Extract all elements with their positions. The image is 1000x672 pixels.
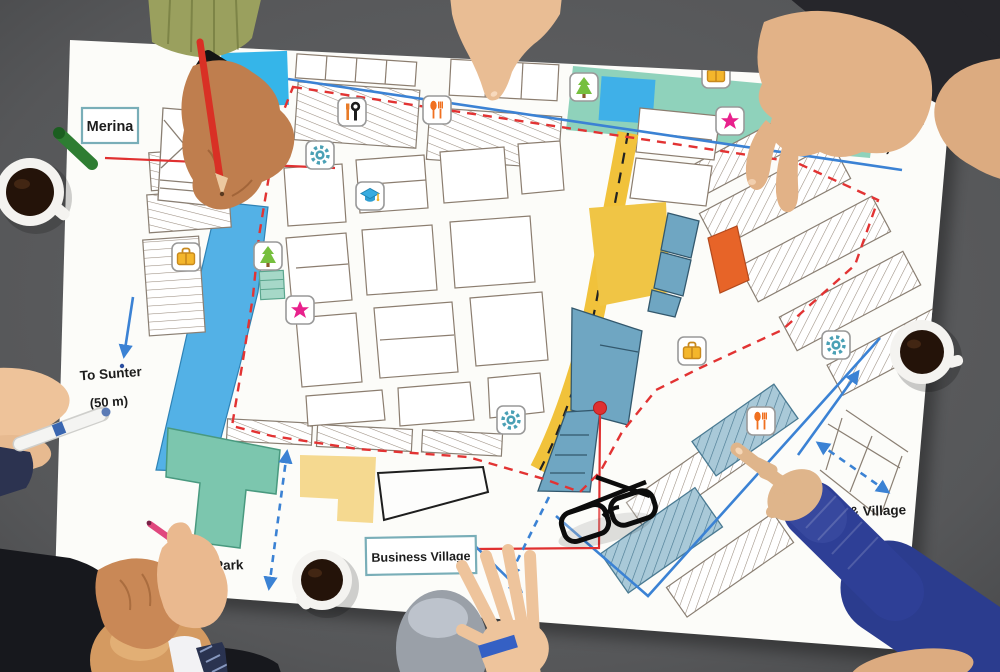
- map-pin-icon: [594, 402, 607, 415]
- tree-icon: [570, 73, 598, 101]
- tree-icon: [254, 242, 282, 270]
- sunter-distance: (50 m): [89, 393, 128, 411]
- gear-icon: [306, 141, 334, 169]
- graduation-cap-icon: [356, 182, 384, 210]
- photo-scene: Merina To Newtown (250 m) To Sunter (50 …: [0, 0, 1000, 672]
- yellow-block: [589, 202, 670, 306]
- business-village-label: Business Village: [371, 549, 470, 565]
- teal-striped-block: [259, 270, 284, 299]
- gear-icon: [497, 406, 525, 434]
- briefcase-icon: [172, 243, 200, 271]
- star-icon: [716, 107, 744, 135]
- star-icon: [286, 296, 314, 324]
- merina-label: Merina: [87, 119, 135, 135]
- restaurant-icon: [423, 96, 451, 124]
- restaurant-icon: [747, 407, 775, 435]
- fingernail: [748, 179, 756, 185]
- briefcase-icon: [678, 337, 706, 365]
- tools-icon: [338, 98, 366, 126]
- gear-icon: [822, 331, 850, 359]
